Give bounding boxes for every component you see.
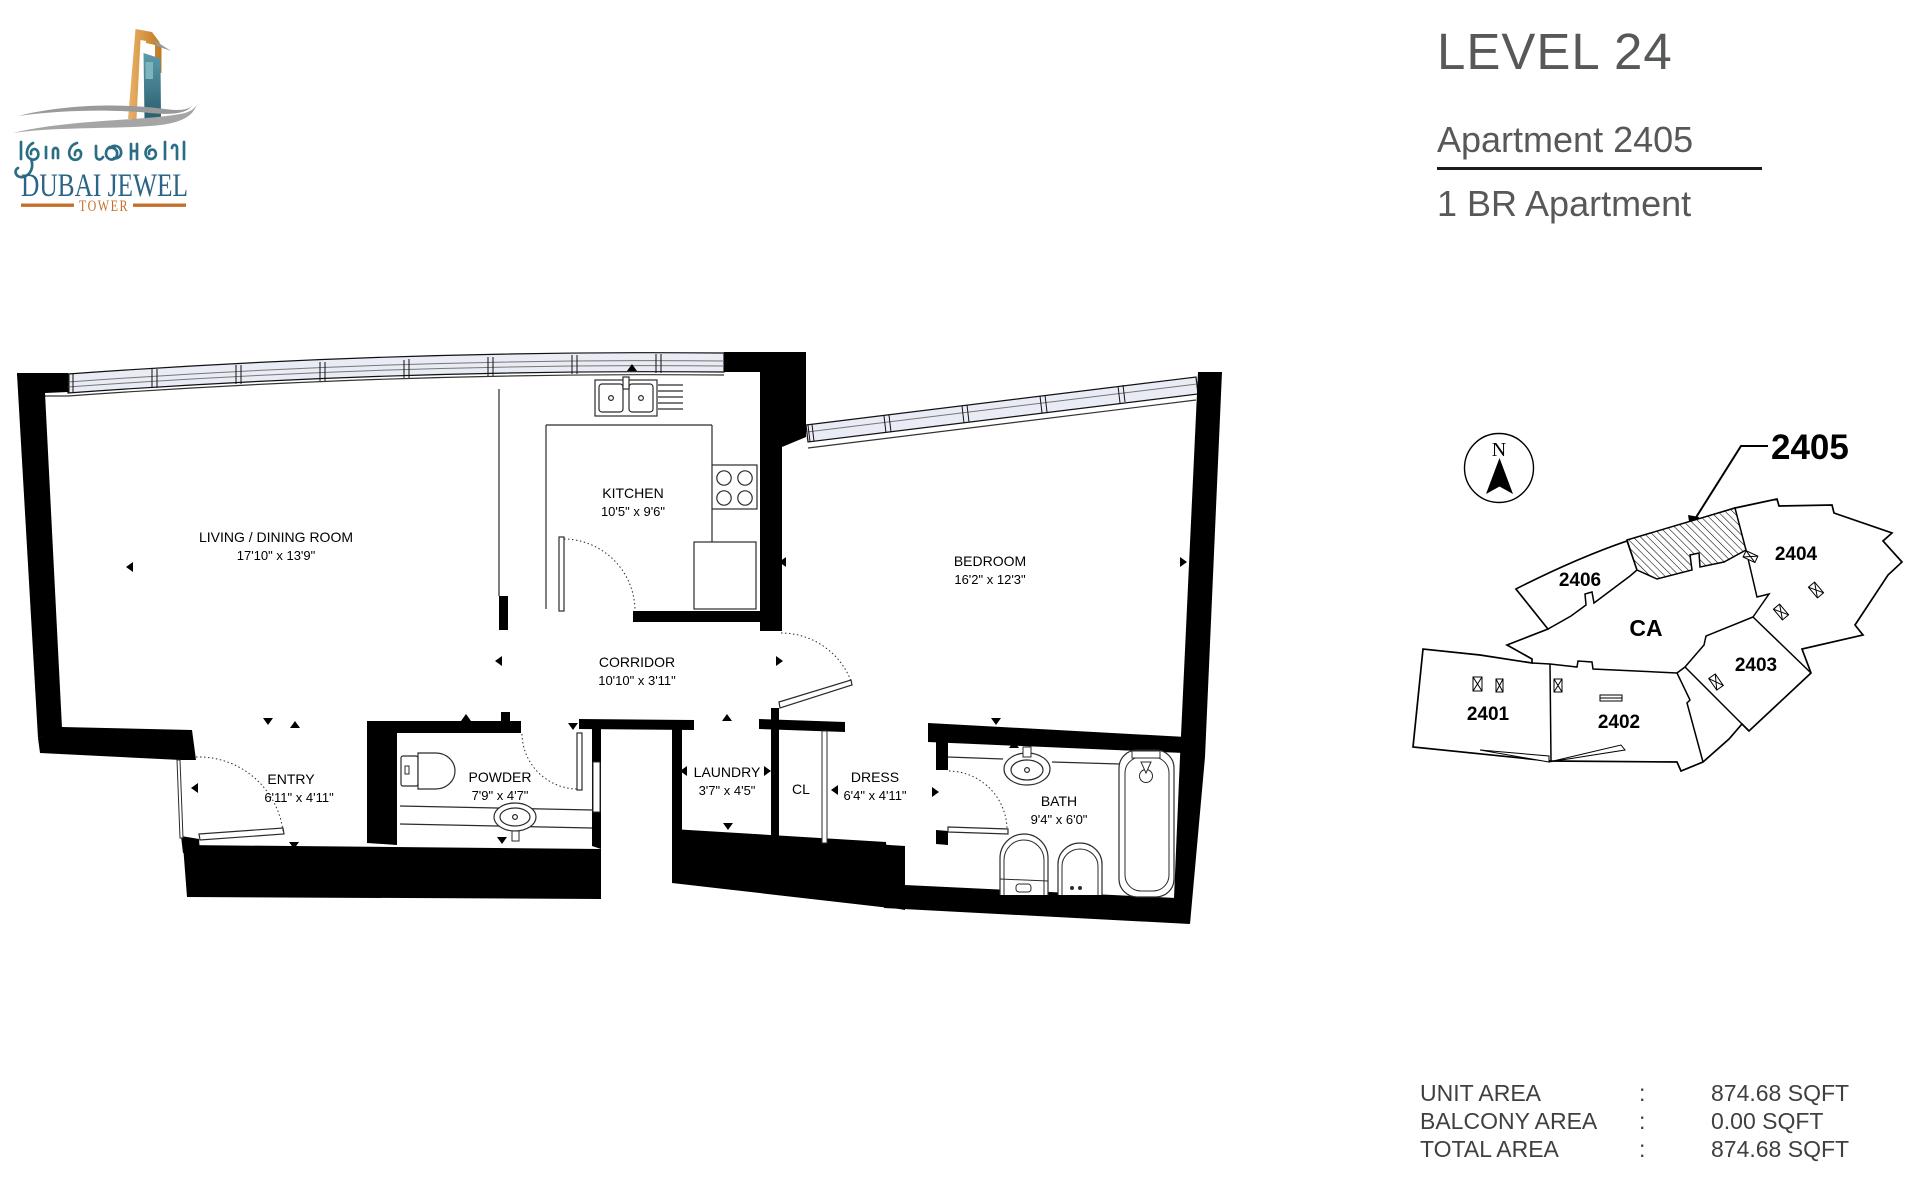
svg-text:3'7" x 4'5": 3'7" x 4'5" xyxy=(699,783,756,798)
svg-text:2405: 2405 xyxy=(1771,428,1849,467)
svg-text:10'10" x 3'11": 10'10" x 3'11" xyxy=(598,673,676,688)
svg-text:BATH: BATH xyxy=(1041,793,1077,809)
svg-text:ENTRY: ENTRY xyxy=(267,771,315,787)
svg-text:6'11" x 4'11": 6'11" x 4'11" xyxy=(264,790,334,805)
svg-text:LAUNDRY: LAUNDRY xyxy=(694,764,761,780)
svg-text:2403: 2403 xyxy=(1735,655,1777,676)
svg-text:10'5" x 9'6": 10'5" x 9'6" xyxy=(601,504,665,519)
svg-text:CA: CA xyxy=(1629,615,1662,641)
svg-text:2401: 2401 xyxy=(1467,704,1510,725)
svg-text:2402: 2402 xyxy=(1598,712,1640,733)
svg-text:7'9" x 4'7": 7'9" x 4'7" xyxy=(472,788,529,803)
svg-text:DRESS: DRESS xyxy=(851,769,899,785)
svg-text:KITCHEN: KITCHEN xyxy=(602,485,663,501)
svg-text:TOWER: TOWER xyxy=(79,198,129,215)
svg-text:POWDER: POWDER xyxy=(469,769,532,785)
svg-text:LIVING / DINING ROOM: LIVING / DINING ROOM xyxy=(199,529,353,545)
svg-text:2406: 2406 xyxy=(1559,570,1601,591)
svg-text:9'4" x 6'0": 9'4" x 6'0" xyxy=(1031,812,1088,827)
svg-text:2404: 2404 xyxy=(1775,544,1818,565)
svg-text:CL: CL xyxy=(792,781,810,797)
svg-text:BEDROOM: BEDROOM xyxy=(954,553,1026,569)
svg-text:6'4" x 4'11": 6'4" x 4'11" xyxy=(843,788,906,803)
svg-text:N: N xyxy=(1492,439,1506,461)
svg-text:16'2" x 12'3": 16'2" x 12'3" xyxy=(954,572,1026,587)
svg-text:17'10" x 13'9": 17'10" x 13'9" xyxy=(237,548,316,563)
svg-text:CORRIDOR: CORRIDOR xyxy=(599,654,675,670)
